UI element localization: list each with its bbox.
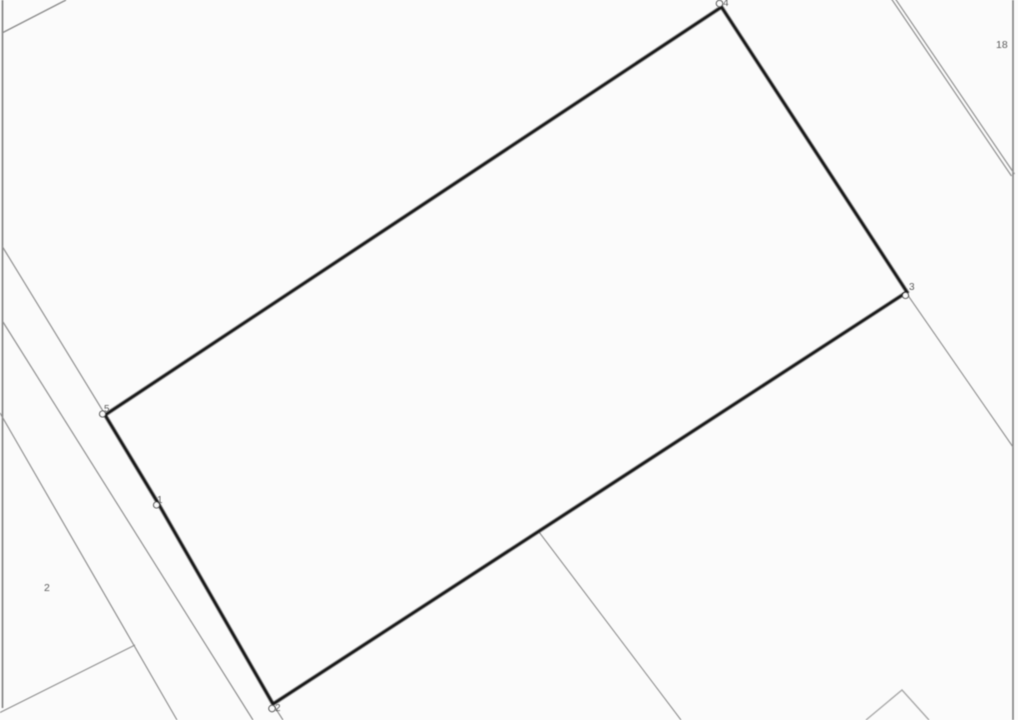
svg-text:18: 18	[996, 39, 1008, 51]
svg-text:1: 1	[157, 495, 163, 506]
svg-text:3: 3	[909, 282, 915, 293]
svg-text:2: 2	[275, 703, 281, 714]
svg-text:2: 2	[44, 582, 50, 594]
svg-text:5: 5	[104, 404, 110, 415]
svg-text:4: 4	[723, 0, 729, 9]
